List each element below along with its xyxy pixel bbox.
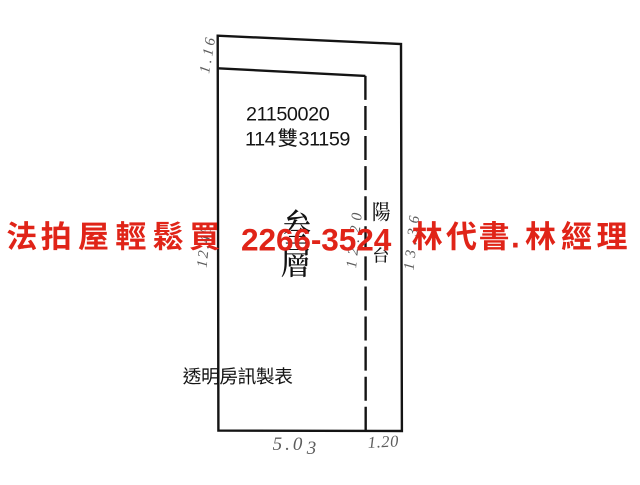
svg-text:5.0: 5.0 xyxy=(273,434,306,455)
svg-text:31159: 31159 xyxy=(299,128,351,150)
svg-text:21150020: 21150020 xyxy=(246,103,330,125)
svg-text:2266-3524: 2266-3524 xyxy=(241,222,392,258)
svg-text:1.20: 1.20 xyxy=(367,431,399,452)
svg-text:.: . xyxy=(511,219,520,255)
svg-text:114: 114 xyxy=(245,128,276,150)
svg-text:3: 3 xyxy=(306,438,317,459)
svg-text:1.16: 1.16 xyxy=(197,33,220,74)
